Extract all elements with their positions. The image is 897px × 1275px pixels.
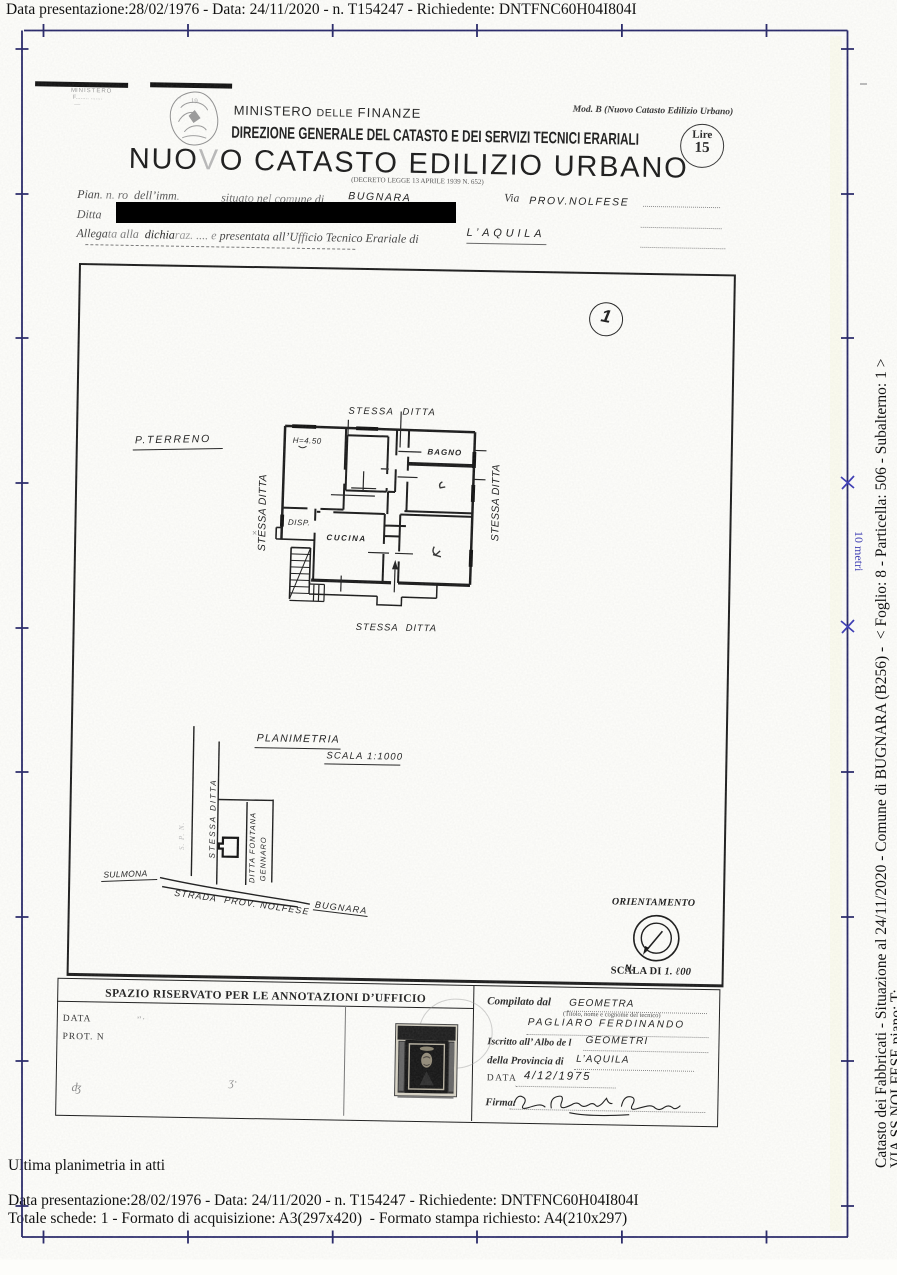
svg-text:GENNARO: GENNARO	[258, 836, 268, 881]
svg-text:DITTA FONTANA: DITTA FONTANA	[247, 812, 257, 883]
svg-text:DISP.: DISP.	[288, 518, 311, 528]
svg-text:BAGNO: BAGNO	[427, 447, 462, 457]
svg-text:CUCINA: CUCINA	[326, 533, 366, 543]
svg-text:H=4.50: H=4.50	[293, 436, 322, 446]
svg-text:STESSA DITTA: STESSA DITTA	[208, 778, 218, 858]
